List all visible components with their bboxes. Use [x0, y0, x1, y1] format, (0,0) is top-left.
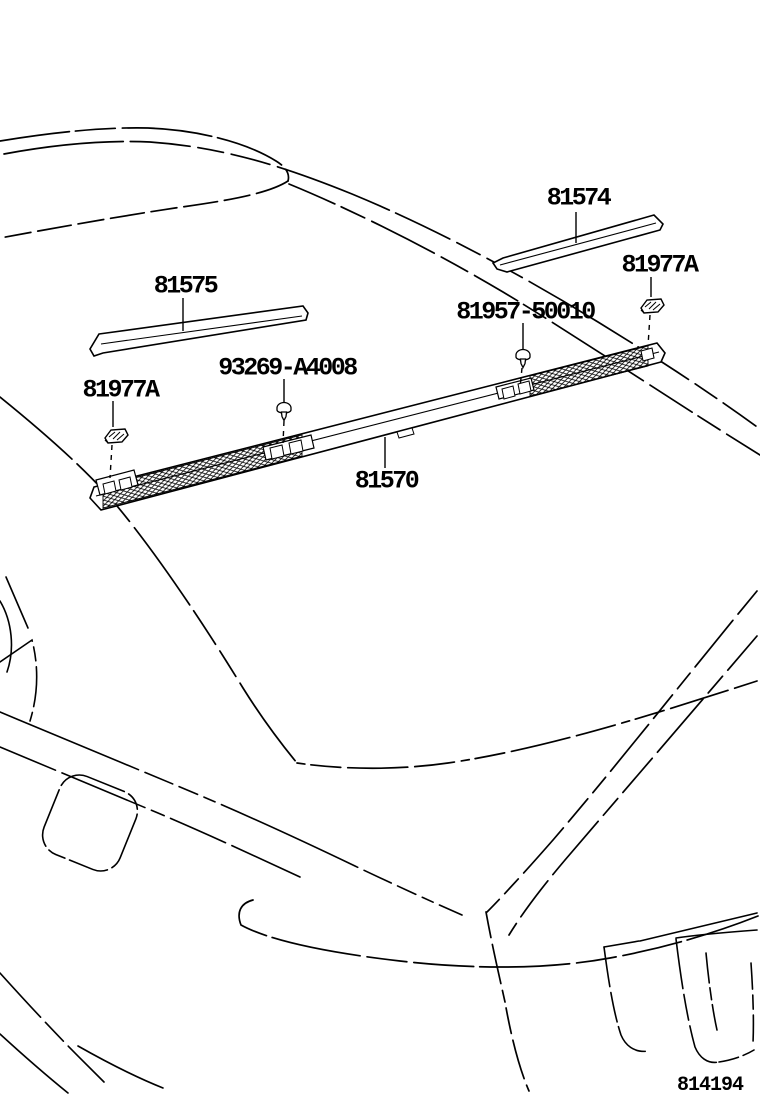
clip-left-81977a	[105, 429, 128, 443]
clip-right-81977a	[641, 299, 664, 313]
diagram-canvas	[0, 0, 760, 1112]
callout-81977a-right[interactable]: 81977A	[621, 253, 696, 278]
screw-81957	[516, 350, 530, 368]
figure-number: 814194	[677, 1076, 743, 1096]
bottom-left-body-lines	[0, 973, 163, 1093]
callout-81977a-left[interactable]: 81977A	[82, 378, 157, 403]
screw-93269	[277, 403, 291, 421]
callout-81575[interactable]: 81575	[154, 274, 217, 299]
callout-81957-50010[interactable]: 81957-50010	[456, 300, 594, 325]
left-quarter-panel-lines	[0, 577, 462, 915]
parts-diagram-page: 81574 81575 81977A 93269-A4008 81957-500…	[0, 0, 760, 1112]
callout-93269-a4008[interactable]: 93269-A4008	[218, 356, 356, 381]
rear-lamp-and-bumper-lines	[604, 913, 757, 1062]
rear-window-lines	[0, 397, 757, 768]
trunk-lid-lines	[239, 591, 758, 1091]
callout-81574[interactable]: 81574	[547, 186, 610, 211]
moulding-strip-lh-81575	[90, 306, 308, 356]
callout-81570[interactable]: 81570	[355, 469, 418, 494]
roof-and-pillar-lines	[0, 128, 760, 455]
